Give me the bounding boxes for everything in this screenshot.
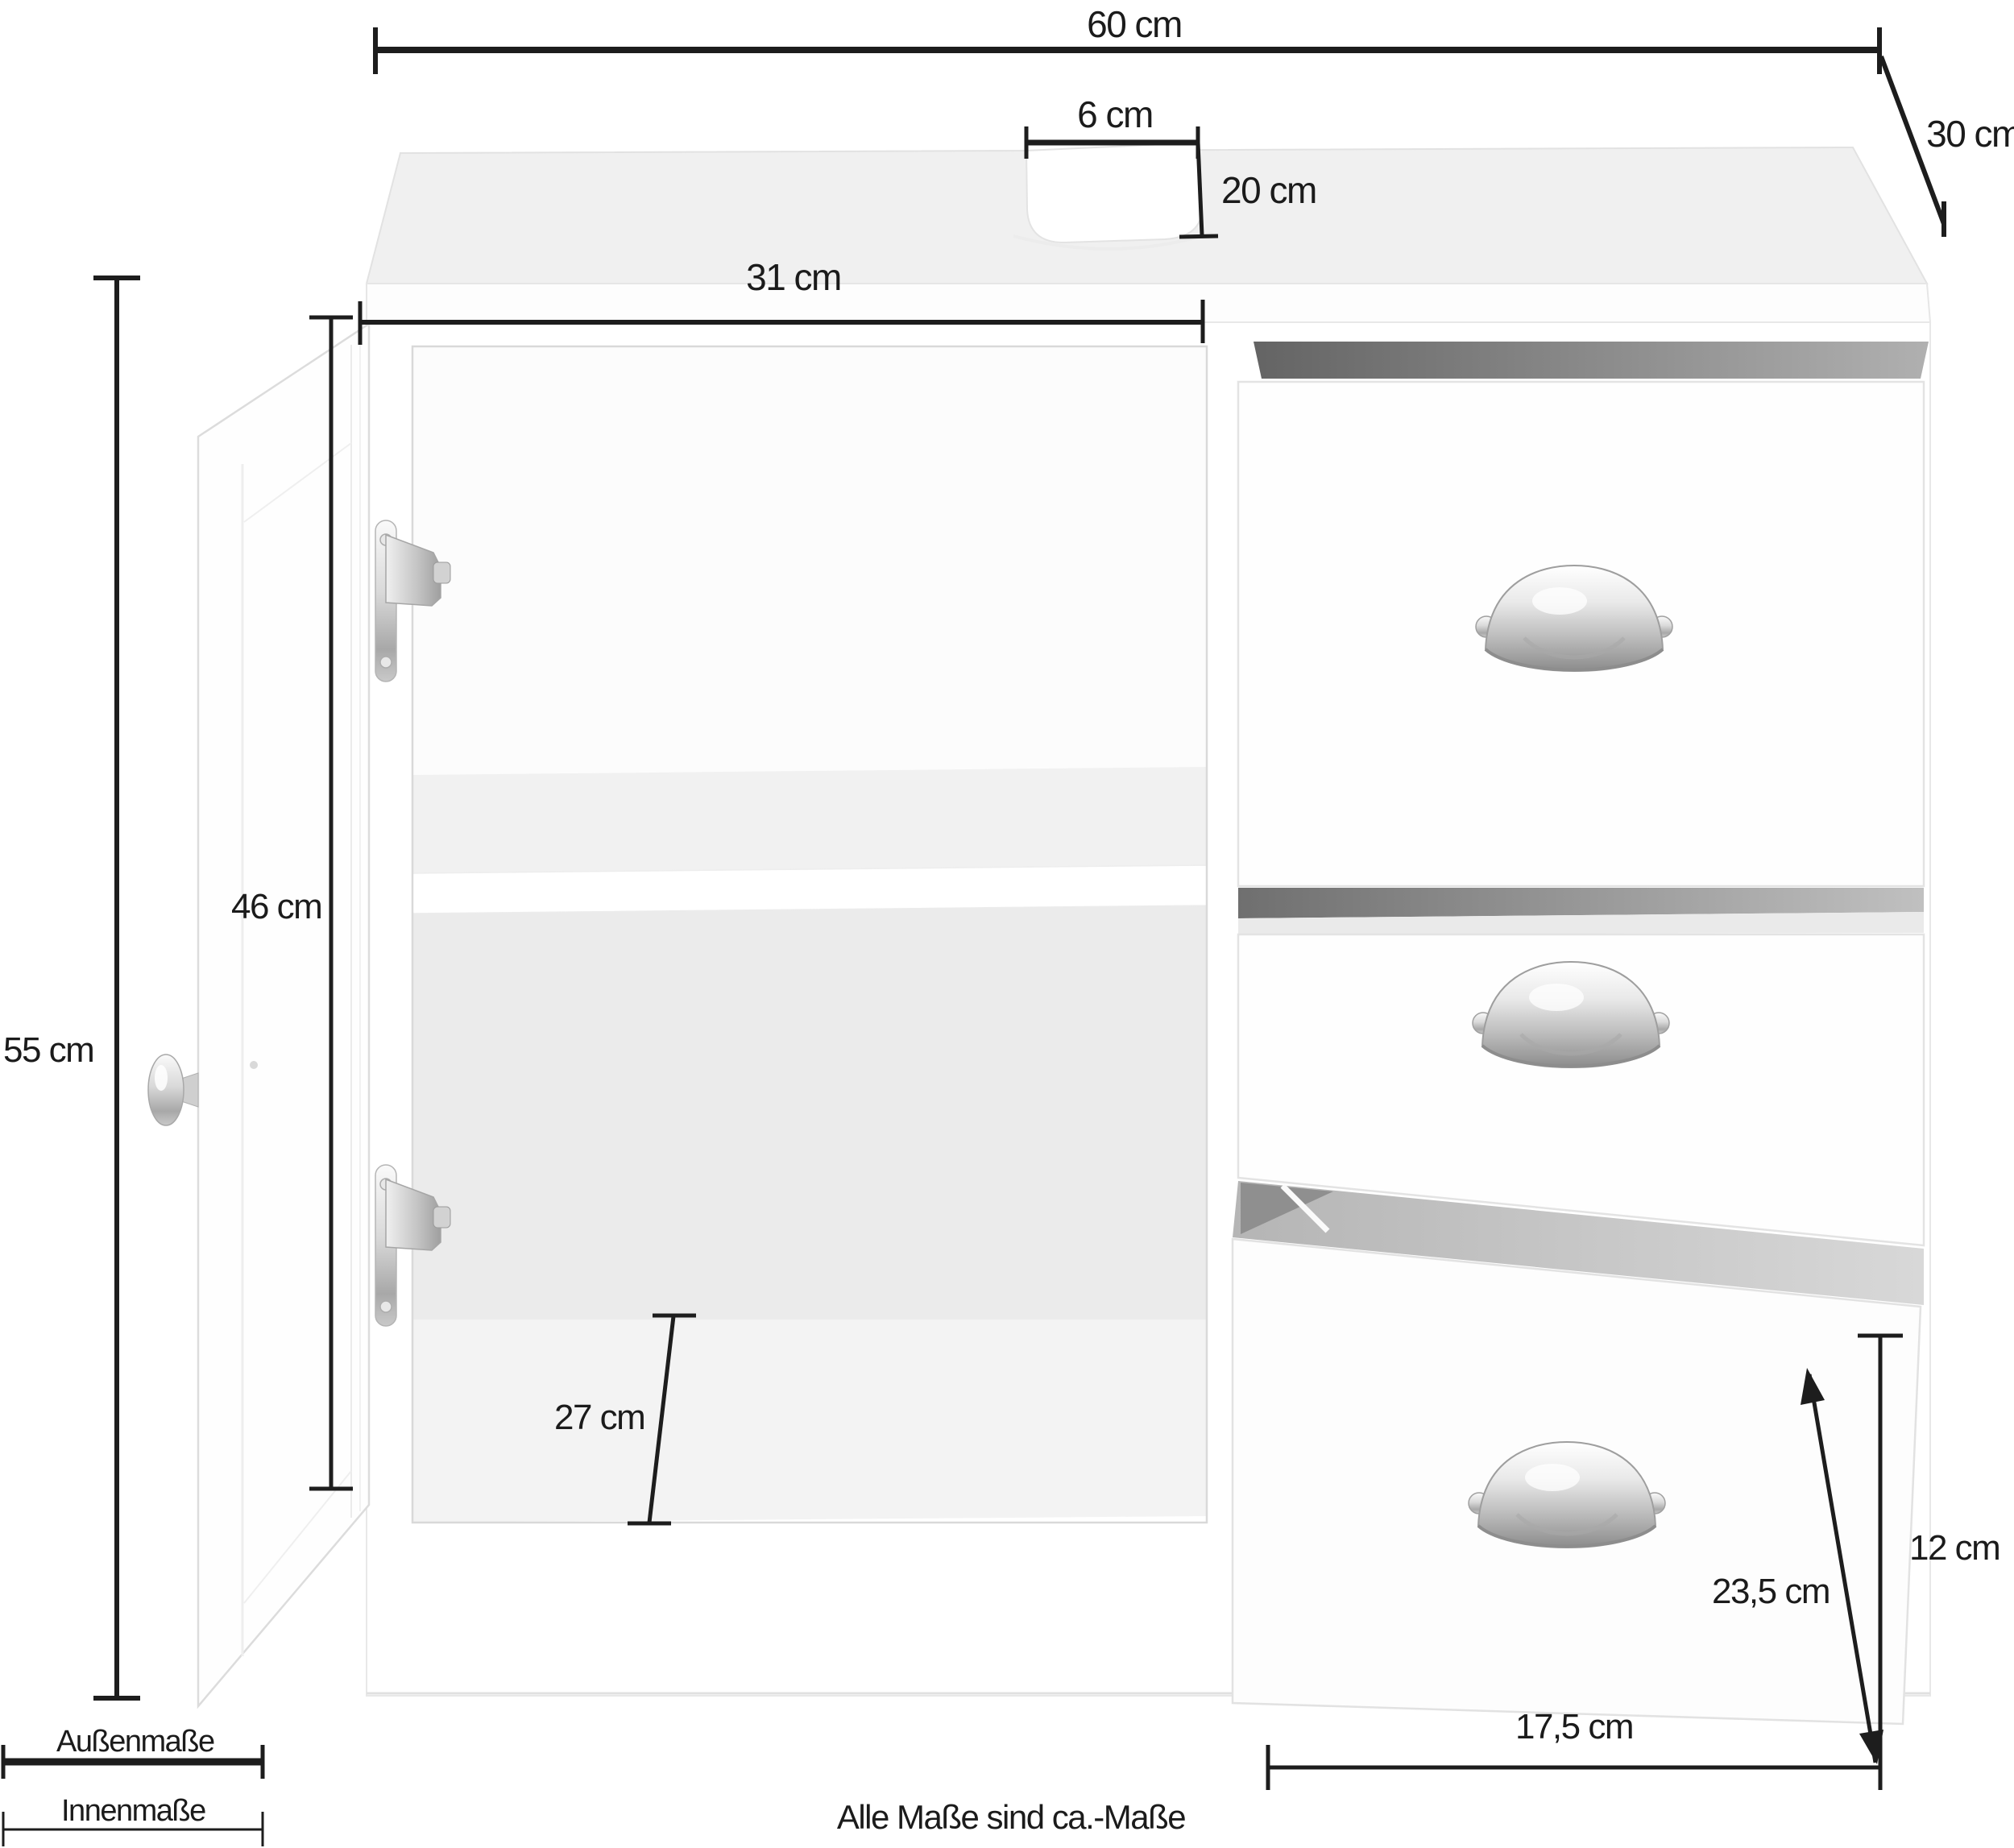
handle-highlight — [1532, 587, 1587, 615]
cabinet-diagram-canvas: 60 cm 30 cm 6 cm 20 cm 31 cm 55 cm 46 cm… — [0, 0, 2014, 1848]
label-cutout-depth: 20 cm — [1221, 169, 1316, 211]
legend-inner-label: Innenmaße — [61, 1794, 205, 1828]
label-drawer-width: 17,5 cm — [1515, 1707, 1633, 1746]
handle-highlight — [1525, 1464, 1580, 1491]
dimension-diagram: 60 cm 30 cm 6 cm 20 cm 31 cm 55 cm 46 cm… — [0, 0, 2014, 1848]
shelf-front-edge — [412, 865, 1207, 914]
label-door-inner-height: 46 cm — [231, 887, 321, 926]
dim-tick — [1179, 236, 1218, 237]
hinge-pin — [433, 562, 450, 583]
hinge-screw — [380, 1301, 392, 1312]
hinge-screw — [380, 657, 392, 668]
label-inner-width: 31 cm — [746, 256, 841, 298]
label-total-height: 55 cm — [3, 1030, 93, 1070]
door-knob — [148, 1055, 198, 1125]
shelf-top-surface — [412, 767, 1207, 873]
label-cutout-width: 6 cm — [1077, 93, 1153, 135]
label-total-depth: 30 cm — [1926, 113, 2014, 155]
footnote: Alle Maße sind ca.-Maße — [837, 1798, 1185, 1836]
hinge-pin — [433, 1207, 450, 1228]
door-knob-cap — [148, 1055, 184, 1125]
dimension-drawer-width — [1268, 1745, 1880, 1790]
door-panel — [198, 324, 369, 1706]
label-inner-depth: 27 cm — [554, 1398, 644, 1437]
cabinet-top-fascia — [367, 284, 1930, 322]
label-drawer-height: 12 cm — [1909, 1528, 1999, 1568]
label-total-width: 60 cm — [1087, 3, 1182, 45]
pipe-cutout — [1026, 143, 1202, 242]
open-compartment — [412, 346, 1207, 1523]
door-screw — [250, 1061, 258, 1069]
compartment-lower-wall — [412, 905, 1207, 1320]
compartment-upper-wall — [412, 346, 1207, 775]
cabinet — [148, 143, 1930, 1724]
door-knob-highlight — [155, 1065, 168, 1091]
legend: Außenmaße Innenmaße — [56, 1725, 214, 1828]
dimension-total-height — [93, 278, 140, 1698]
handle-highlight — [1529, 984, 1584, 1011]
label-drawer-depth: 23,5 cm — [1712, 1572, 1830, 1611]
compartment-floor — [412, 1320, 1207, 1523]
top-gap-shadow — [1254, 342, 1929, 379]
legend-outer-label: Außenmaße — [56, 1725, 214, 1759]
